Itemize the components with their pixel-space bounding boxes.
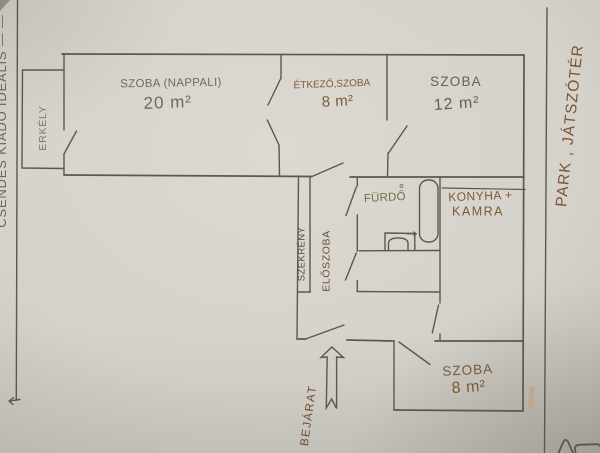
svg-text:SZOBA: SZOBA [430,74,482,89]
svg-text:ELŐSZOBA: ELŐSZOBA [319,230,333,291]
svg-text:SZEKRÉNY: SZEKRÉNY [297,227,308,282]
svg-text:KAMRA: KAMRA [452,205,504,219]
svg-text:SZOBA: SZOBA [442,361,493,379]
svg-text:SZOBA (NAPPALI): SZOBA (NAPPALI) [120,77,222,91]
svg-text:8 m²: 8 m² [451,378,486,397]
svg-text:ERKÉLY: ERKÉLY [36,105,49,150]
svg-text:KONYHA +: KONYHA + [448,188,513,204]
svg-text:CSENDES KIADÓ IDEÁLIS — —: CSENDES KIADÓ IDEÁLIS — — [0,14,9,228]
svg-text:20 m²: 20 m² [143,92,192,113]
svg-text:12 m²: 12 m² [433,94,480,114]
svg-text:8 m²: 8 m² [321,92,354,111]
